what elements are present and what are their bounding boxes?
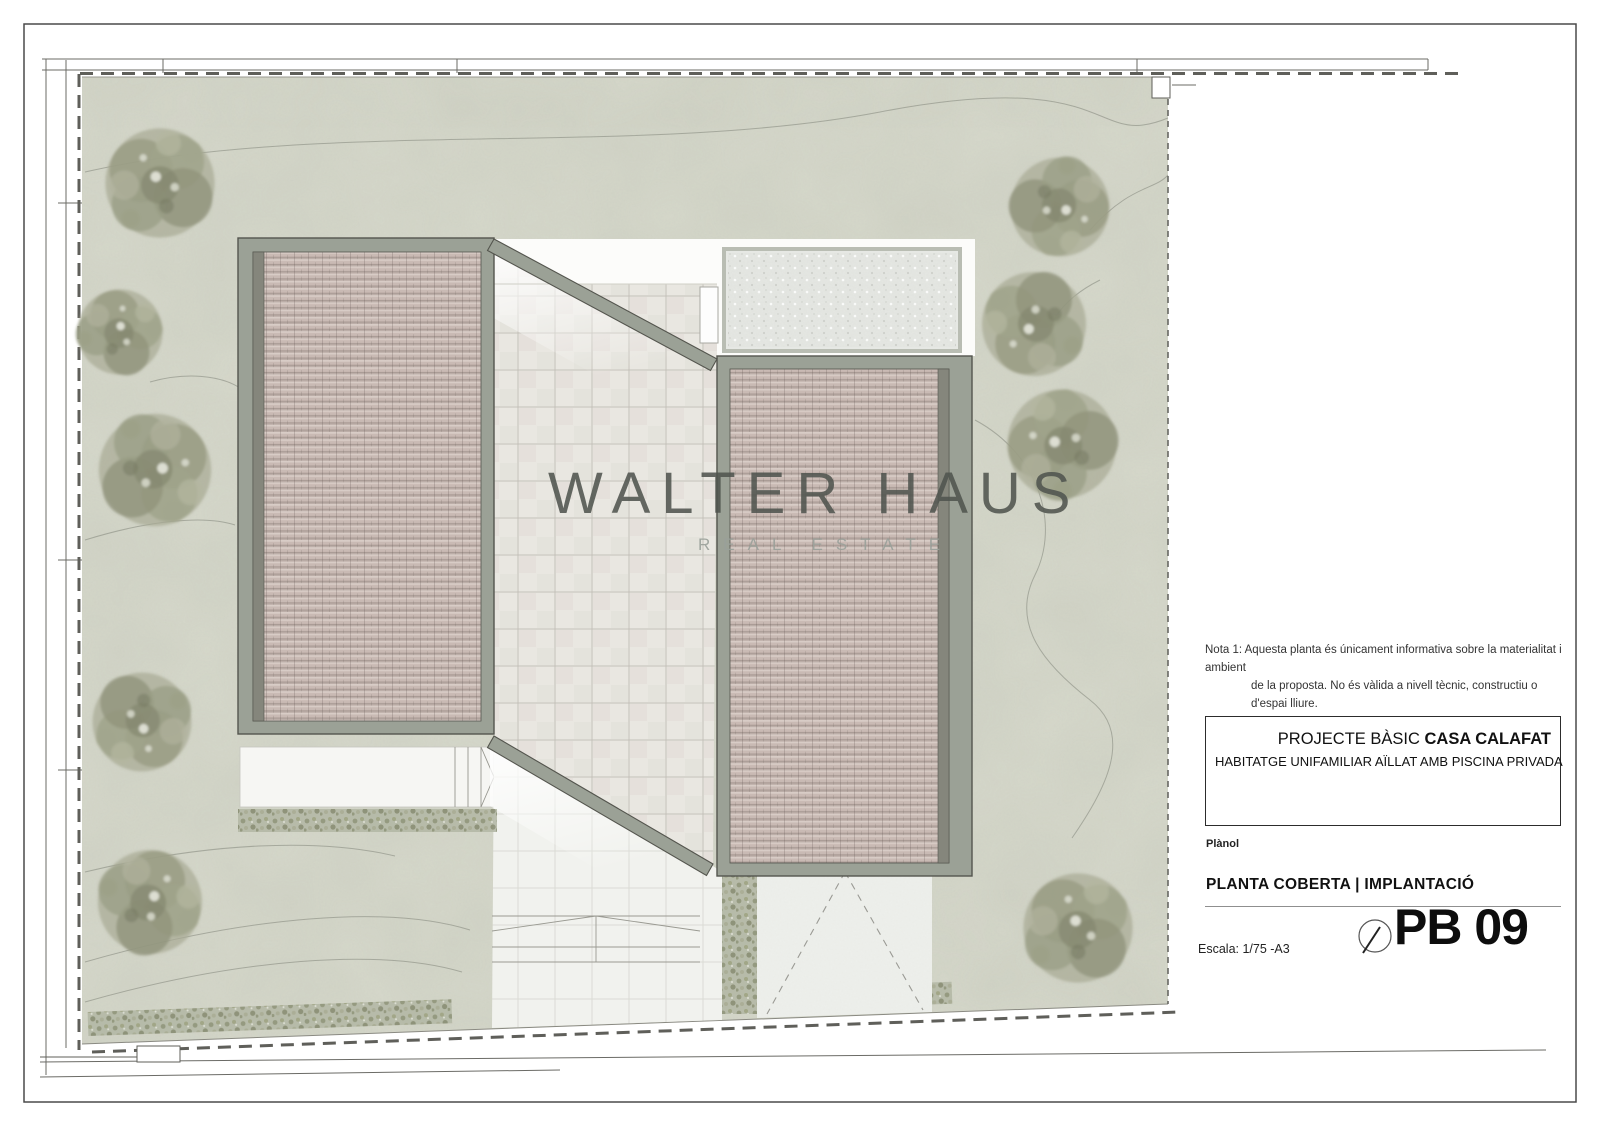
- drawing-sheet: WALTER HAUS REAL ESTATE Nota 1: Aquesta …: [0, 0, 1600, 1131]
- roof-left: [238, 238, 494, 734]
- scale-label: Escala: 1/75 -A3: [1198, 942, 1290, 956]
- roof-right: [717, 356, 972, 876]
- plan-label: Plànol: [1206, 838, 1239, 850]
- pool: [700, 249, 960, 351]
- site-plan-drawing: [0, 0, 1600, 1131]
- boundary-notch: [1152, 77, 1170, 98]
- tree: [105, 128, 214, 237]
- project-title: PROJECTE BÀSIC CASA CALAFAT: [1215, 730, 1551, 749]
- north-symbol-icon: [1354, 917, 1394, 957]
- note-text: Nota 1: Aquesta planta és únicament info…: [1205, 641, 1565, 713]
- entrance-stairs: [240, 747, 494, 807]
- hedge-strip: [722, 870, 757, 1014]
- plan-title: PLANTA COBERTA | IMPLANTACIÓ: [1206, 876, 1474, 894]
- title-block-box: PROJECTE BÀSIC CASA CALAFAT HABITATGE UN…: [1205, 716, 1561, 826]
- note-line-2: de la proposta. No és vàlida a nivell tè…: [1251, 677, 1565, 713]
- project-title-name: CASA CALAFAT: [1425, 730, 1552, 748]
- note-line-1: Nota 1: Aquesta planta és únicament info…: [1205, 641, 1565, 677]
- hedge-strip: [238, 809, 497, 832]
- project-subtitle: HABITATGE UNIFAMILIAR AÏLLAT AMB PISCINA…: [1215, 754, 1551, 769]
- project-title-prefix: PROJECTE BÀSIC: [1278, 730, 1425, 748]
- pool-pillar: [700, 287, 718, 343]
- driveway: [757, 872, 932, 1018]
- sheet-code: PB 09: [1394, 898, 1528, 956]
